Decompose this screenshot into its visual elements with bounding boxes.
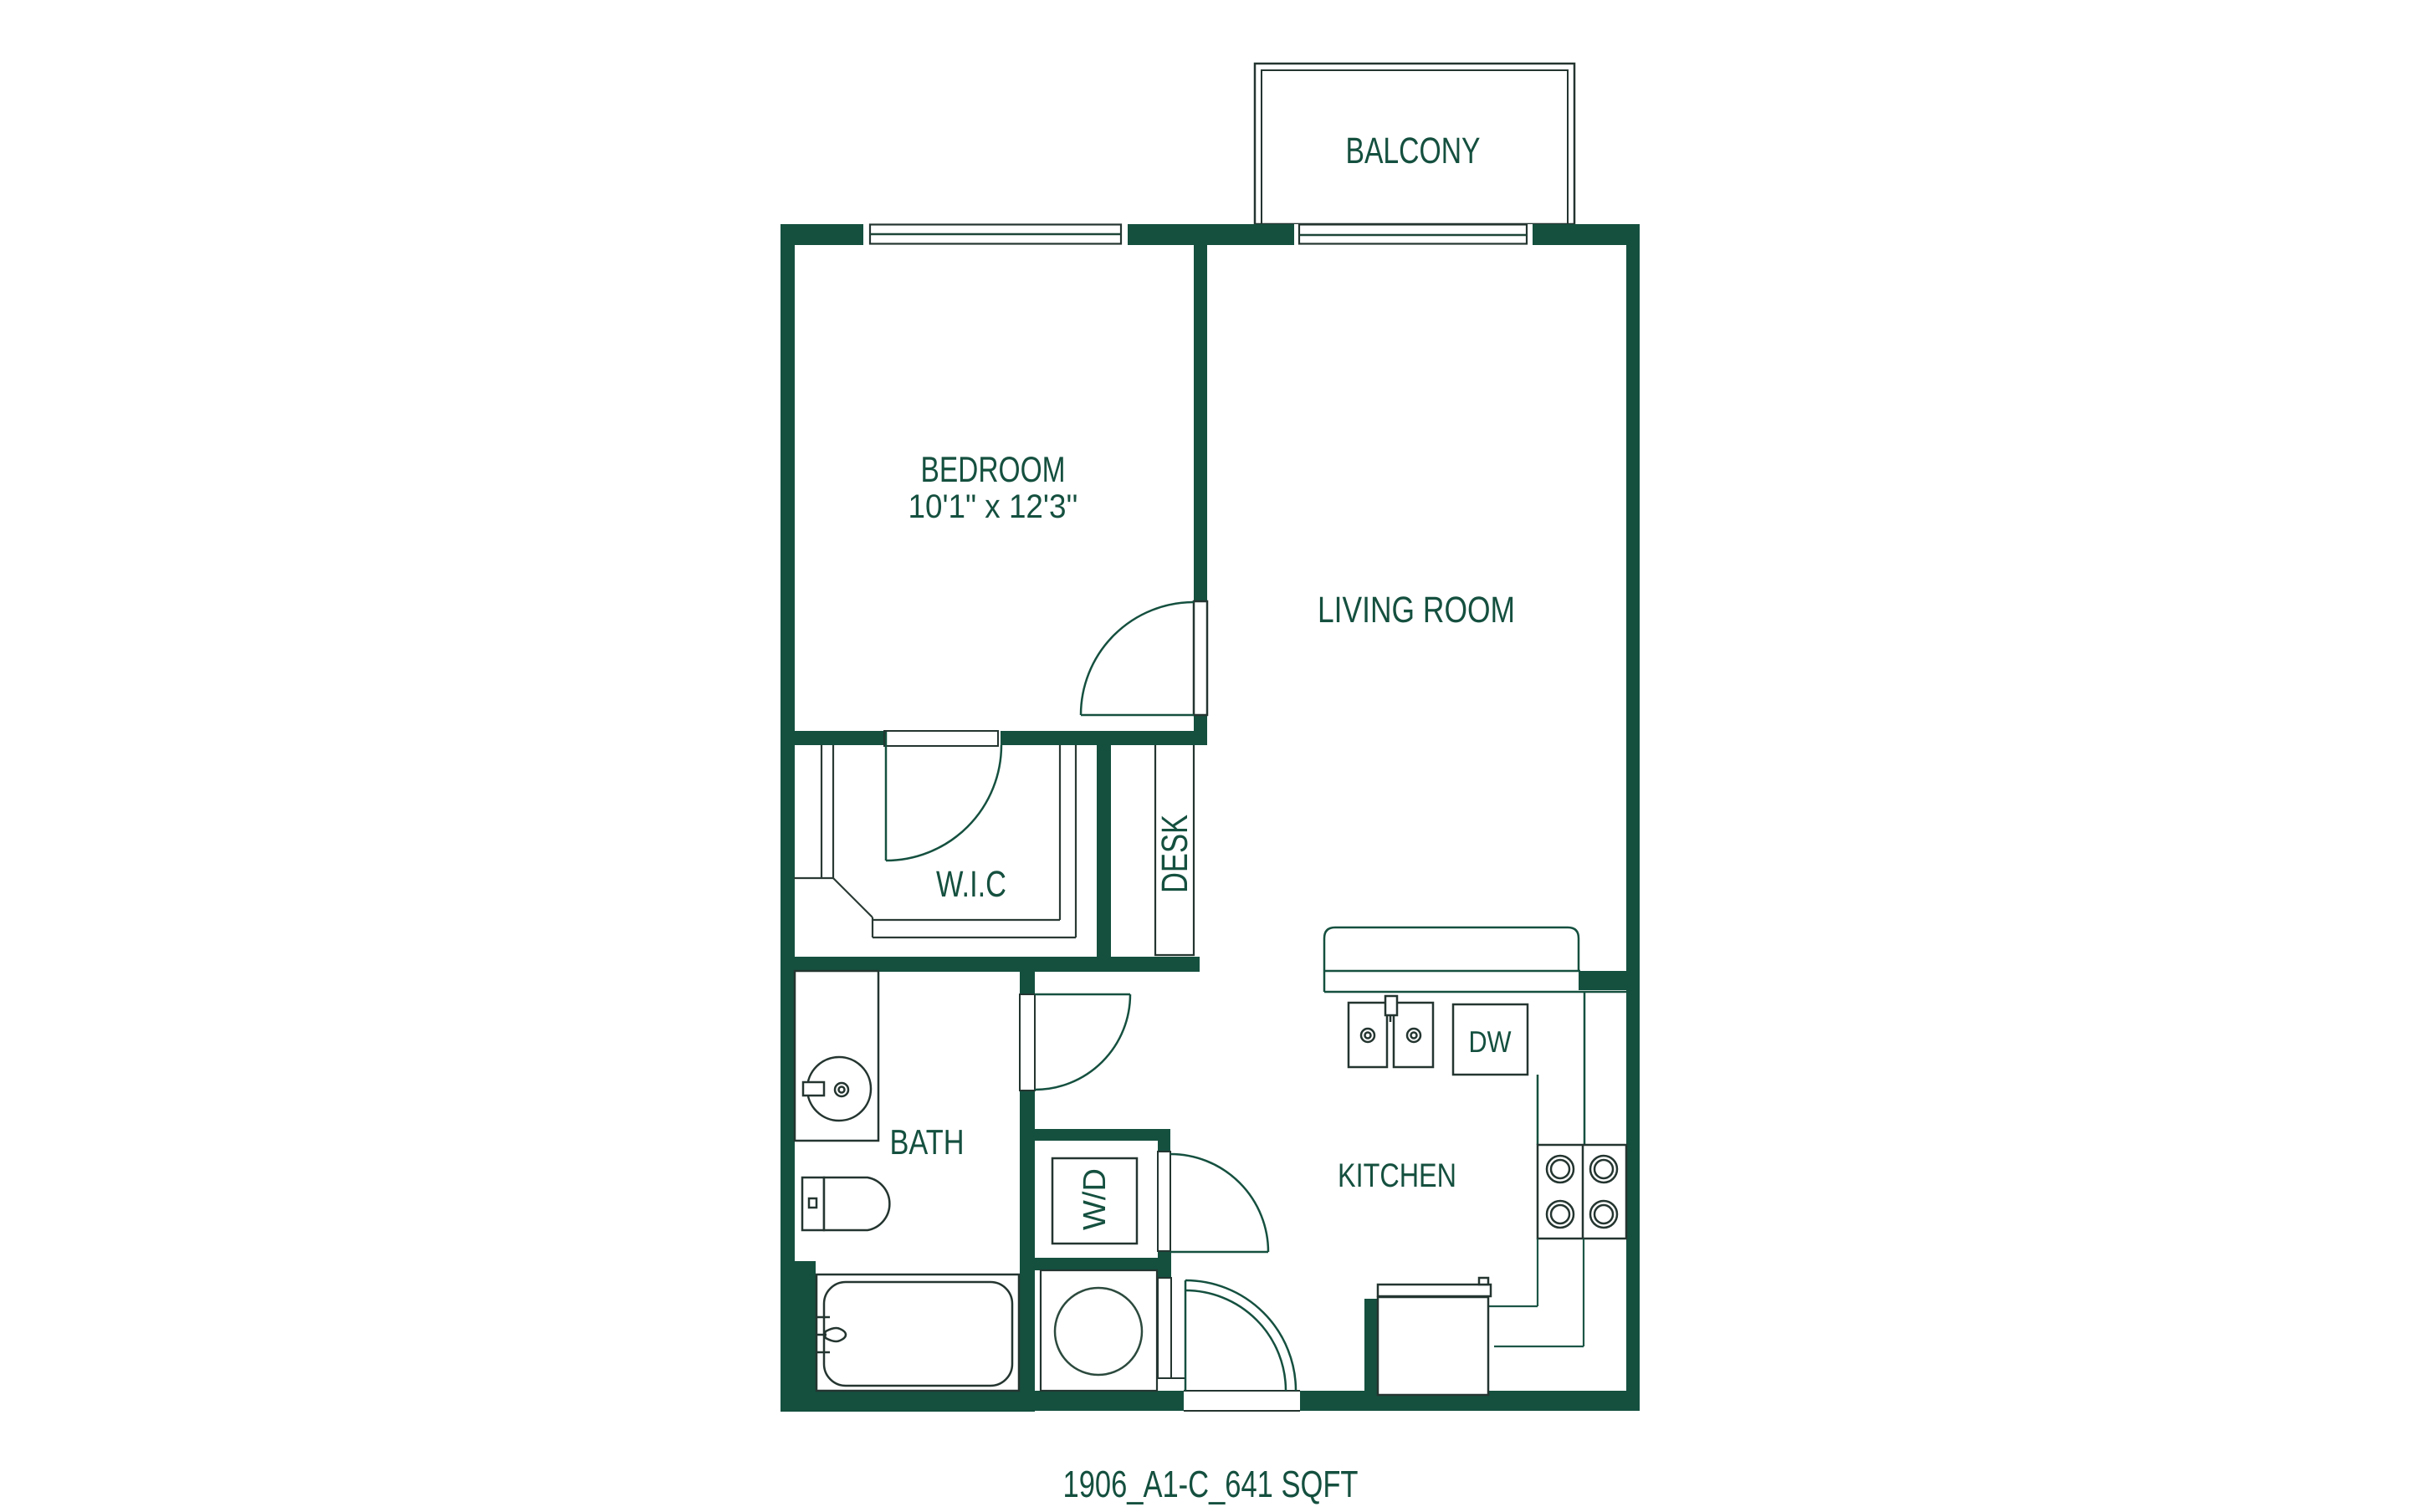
- svg-text:BALCONY: BALCONY: [1346, 130, 1481, 171]
- svg-text:DESK: DESK: [1154, 815, 1195, 893]
- svg-text:BATH: BATH: [890, 1122, 965, 1162]
- svg-text:DW: DW: [1469, 1024, 1512, 1059]
- svg-text:W/D: W/D: [1077, 1168, 1113, 1230]
- svg-text:10'1" x 12'3'': 10'1" x 12'3'': [909, 488, 1078, 525]
- svg-text:LIVING ROOM: LIVING ROOM: [1318, 590, 1515, 631]
- svg-text:BEDROOM: BEDROOM: [921, 450, 1066, 490]
- svg-text:KITCHEN: KITCHEN: [1338, 1157, 1456, 1194]
- svg-text:W.I.C: W.I.C: [936, 864, 1006, 905]
- svg-text:1906_A1-C_641 SQFT: 1906_A1-C_641 SQFT: [1063, 1463, 1359, 1505]
